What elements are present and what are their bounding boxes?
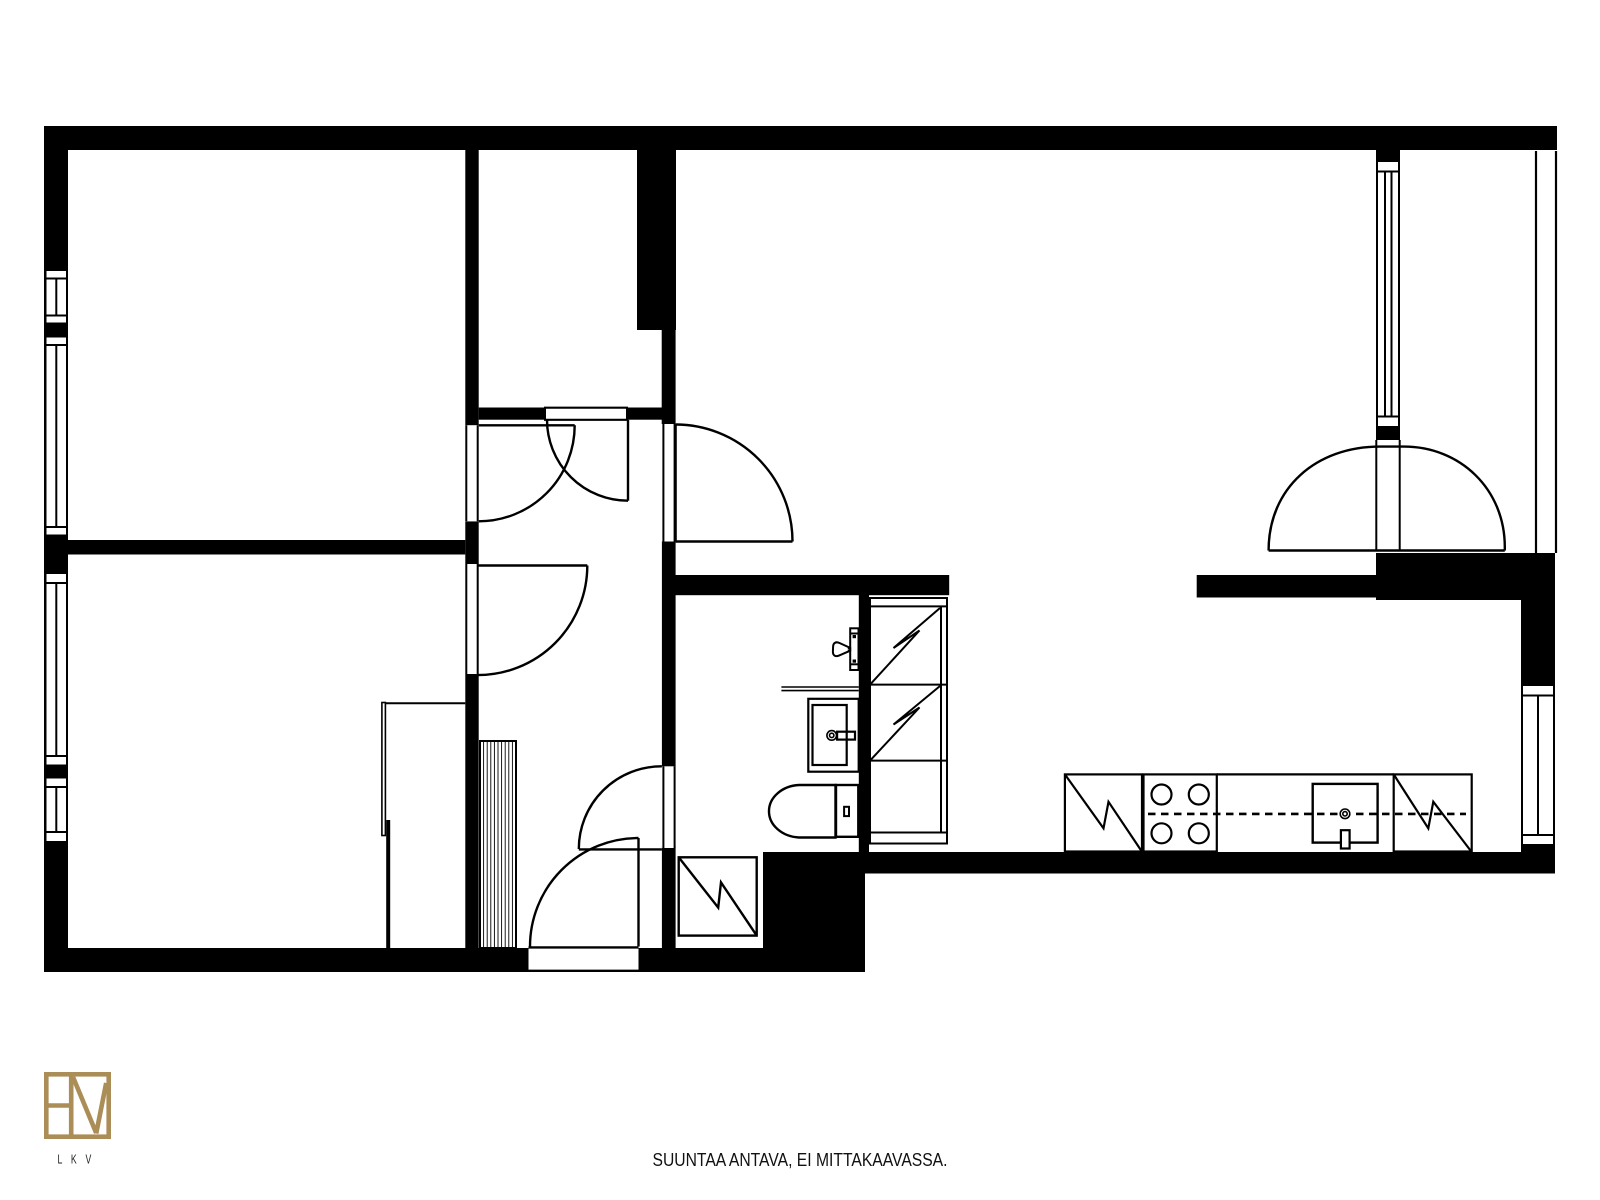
svg-text:L K V: L K V — [58, 1153, 95, 1167]
svg-text:SUUNTAA ANTAVA, EI MITTAKAAVAS: SUUNTAA ANTAVA, EI MITTAKAAVASSA. — [653, 1149, 948, 1170]
